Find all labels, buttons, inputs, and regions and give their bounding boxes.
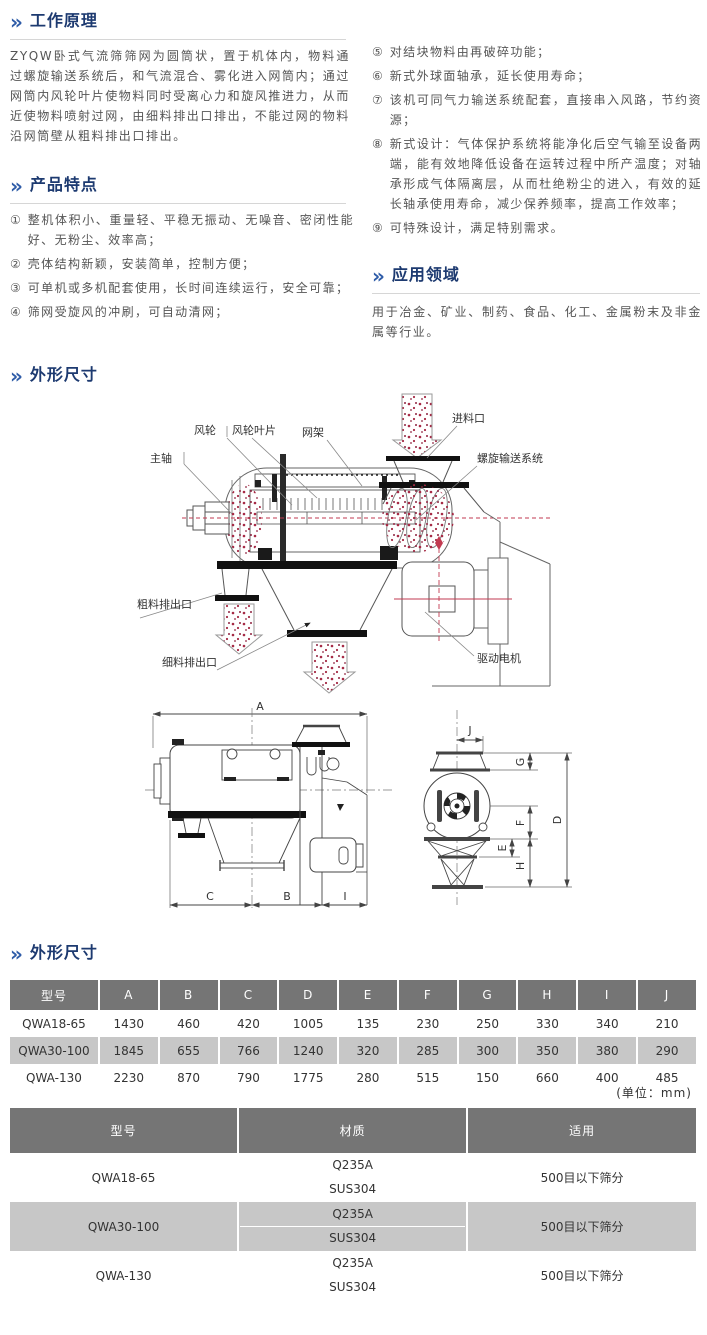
dim-letter-D: D bbox=[551, 816, 564, 824]
list-item: ⑤对结块物料由再破碎功能； bbox=[372, 42, 702, 62]
cell: 766 bbox=[220, 1037, 278, 1064]
label-wind-wheel: 风轮 bbox=[194, 423, 216, 437]
table-row: QWA30-100 1845 655 766 1240 320 285 300 … bbox=[10, 1037, 696, 1064]
chevron-icon: » bbox=[10, 178, 23, 194]
chevron-icon: » bbox=[10, 368, 23, 384]
column-header: C bbox=[220, 980, 278, 1010]
chevron-icon: » bbox=[10, 14, 23, 30]
cell: 230 bbox=[399, 1010, 457, 1037]
column-header: G bbox=[459, 980, 517, 1010]
label-screw-conveyor: 螺旋输送系统 bbox=[477, 451, 543, 465]
cell: 320 bbox=[339, 1037, 397, 1064]
section-heading-outline-dims-table: » 外形尺寸 bbox=[10, 944, 346, 962]
working-principle-text: ZYQW卧式气流筛筛网为圆筒状，置于机体内，物料通过螺旋输送系统后，和气流混合、… bbox=[10, 46, 350, 146]
cell: 135 bbox=[339, 1010, 397, 1037]
label-coarse-outlet: 粗料排出口 bbox=[137, 597, 192, 611]
material-option: SUS304 bbox=[240, 1276, 465, 1299]
cell: 1005 bbox=[279, 1010, 337, 1037]
section-title: 产品特点 bbox=[30, 176, 98, 194]
dimension-table: 型号 A B C D E F G H I J QWA18-65 1430 460… bbox=[8, 980, 698, 1091]
cell: 420 bbox=[220, 1010, 278, 1037]
front-view bbox=[424, 710, 572, 905]
cell-application: 500目以下筛分 bbox=[468, 1251, 696, 1300]
dim-letter-C: C bbox=[206, 890, 214, 903]
dim-letter-B: B bbox=[283, 890, 291, 903]
section-title: 外形尺寸 bbox=[30, 944, 98, 962]
chevron-icon: » bbox=[10, 946, 23, 962]
table-header-row: 型号 A B C D E F G H I J bbox=[10, 980, 696, 1010]
label-fine-outlet: 细料排出口 bbox=[162, 655, 217, 669]
column-header-material: 材质 bbox=[239, 1108, 466, 1153]
outlets bbox=[215, 561, 397, 693]
cell: 300 bbox=[459, 1037, 517, 1064]
section-title: 工作原理 bbox=[30, 12, 98, 30]
list-item: ⑨可特殊设计，满足特别需求。 bbox=[372, 218, 702, 238]
table-row: QWA-130 Q235A SUS304 500目以下筛分 bbox=[10, 1251, 696, 1300]
cell: 210 bbox=[638, 1010, 696, 1037]
feed-arrow bbox=[393, 394, 441, 458]
column-header-application: 适用 bbox=[468, 1108, 696, 1153]
cell-model: QWA30-100 bbox=[10, 1037, 98, 1064]
table-row: QWA30-100 Q235A SUS304 500目以下筛分 bbox=[10, 1202, 696, 1251]
column-header: F bbox=[399, 980, 457, 1010]
dim-letter-F: F bbox=[514, 820, 527, 826]
cell-materials: Q235A SUS304 bbox=[239, 1251, 466, 1300]
dimension-drawing: A C B I J G F E H D bbox=[140, 700, 600, 915]
cell: 250 bbox=[459, 1010, 517, 1037]
cell-model: QWA30-100 bbox=[10, 1202, 237, 1251]
column-header-model: 型号 bbox=[10, 1108, 237, 1153]
table-header-row: 型号 材质 适用 bbox=[10, 1108, 696, 1153]
dim-letter-E: E bbox=[496, 844, 509, 851]
list-item: ③可单机或多机配套使用，长时间连续运行，安全可靠； bbox=[10, 278, 354, 298]
dim-letter-A: A bbox=[256, 700, 264, 713]
cell: 1845 bbox=[100, 1037, 158, 1064]
section-heading-outline-dims: » 外形尺寸 bbox=[10, 366, 346, 384]
section-title: 应用领域 bbox=[392, 266, 460, 284]
features-list-right: ⑤对结块物料由再破碎功能； ⑥新式外球面轴承，延长使用寿命； ⑦该机可同气力输送… bbox=[372, 42, 702, 242]
list-item: ④筛网受旋风的冲刷，可自动清网； bbox=[10, 302, 354, 322]
cell-application: 500目以下筛分 bbox=[468, 1153, 696, 1202]
column-header: I bbox=[578, 980, 636, 1010]
table-row: QWA18-65 1430 460 420 1005 135 230 250 3… bbox=[10, 1010, 696, 1037]
column-header-model: 型号 bbox=[10, 980, 98, 1010]
cell-model: QWA18-65 bbox=[10, 1153, 237, 1202]
column-header: H bbox=[518, 980, 576, 1010]
cell-application: 500目以下筛分 bbox=[468, 1202, 696, 1251]
machine-assembly-diagram: 主轴 风轮 风轮叶片 网架 进料口 螺旋输送系统 粗料排出口 细料排出口 驱动电… bbox=[132, 390, 656, 700]
material-option: SUS304 bbox=[240, 1227, 465, 1250]
dim-letter-H: H bbox=[514, 862, 527, 870]
column-header: J bbox=[638, 980, 696, 1010]
dim-letter-J: J bbox=[467, 724, 471, 737]
cell: 290 bbox=[638, 1037, 696, 1064]
label-main-shaft: 主轴 bbox=[150, 451, 172, 465]
list-item: ⑥新式外球面轴承，延长使用寿命； bbox=[372, 66, 702, 86]
coarse-outlet-arrow bbox=[216, 604, 262, 654]
cell: 1430 bbox=[100, 1010, 158, 1037]
material-option: Q235A bbox=[240, 1154, 465, 1178]
label-net-frame: 网架 bbox=[302, 426, 324, 439]
label-drive-motor: 驱动电机 bbox=[477, 651, 521, 665]
column-header: D bbox=[279, 980, 337, 1010]
material-option: Q235A bbox=[240, 1252, 465, 1276]
cell: 330 bbox=[518, 1010, 576, 1037]
cell: 1240 bbox=[279, 1037, 337, 1064]
section-heading-applications: » 应用领域 bbox=[372, 266, 700, 294]
column-header: A bbox=[100, 980, 158, 1010]
list-item: ⑦该机可同气力输送系统配套，直接串入风路，节约资源； bbox=[372, 90, 702, 130]
label-feed-inlet: 进料口 bbox=[452, 411, 485, 425]
column-header: B bbox=[160, 980, 218, 1010]
cell-model: QWA-130 bbox=[10, 1251, 237, 1300]
material-option: SUS304 bbox=[240, 1178, 465, 1201]
table-row: QWA18-65 Q235A SUS304 500目以下筛分 bbox=[10, 1153, 696, 1202]
cell: 350 bbox=[518, 1037, 576, 1064]
side-view bbox=[145, 708, 395, 908]
cell: 285 bbox=[399, 1037, 457, 1064]
column-header: E bbox=[339, 980, 397, 1010]
cell: 340 bbox=[578, 1010, 636, 1037]
material-spec-table: 型号 材质 适用 QWA18-65 Q235A SUS304 500目以下筛分 … bbox=[8, 1108, 698, 1300]
cell: 380 bbox=[578, 1037, 636, 1064]
list-item: ⑧新式设计：气体保护系统将能净化后空气输至设备两端，能有效地降低设备在运转过程中… bbox=[372, 134, 702, 214]
dim-letter-I: I bbox=[343, 890, 346, 903]
main-shaft bbox=[187, 502, 229, 534]
dim-letter-G: G bbox=[514, 758, 527, 767]
list-item: ①整机体积小、重量轻、平稳无振动、无噪音、密闭性能好、无粉尘、效率高； bbox=[10, 210, 354, 250]
cell-model: QWA18-65 bbox=[10, 1010, 98, 1037]
features-list-left: ①整机体积小、重量轻、平稳无振动、无噪音、密闭性能好、无粉尘、效率高； ②壳体结… bbox=[10, 210, 354, 326]
section-heading-working-principle: » 工作原理 bbox=[10, 12, 346, 40]
label-wind-wheel-blades: 风轮叶片 bbox=[232, 423, 276, 437]
list-item: ②壳体结构新颖，安装简单，控制方便； bbox=[10, 254, 354, 274]
applications-text: 用于冶金、矿业、制药、食品、化工、金属粉末及非金属等行业。 bbox=[372, 302, 702, 342]
cell-materials: Q235A SUS304 bbox=[239, 1202, 466, 1251]
fine-outlet-arrow bbox=[304, 642, 355, 693]
chevron-icon: » bbox=[372, 268, 385, 284]
cell: 460 bbox=[160, 1010, 218, 1037]
section-heading-features: » 产品特点 bbox=[10, 176, 346, 204]
section-title: 外形尺寸 bbox=[30, 366, 98, 384]
unit-note: (单位：mm) bbox=[8, 1084, 692, 1101]
page: » 工作原理 ZYQW卧式气流筛筛网为圆筒状，置于机体内，物料通过螺旋输送系统后… bbox=[0, 0, 707, 1335]
cell-materials: Q235A SUS304 bbox=[239, 1153, 466, 1202]
cell: 655 bbox=[160, 1037, 218, 1064]
material-option: Q235A bbox=[240, 1203, 465, 1227]
